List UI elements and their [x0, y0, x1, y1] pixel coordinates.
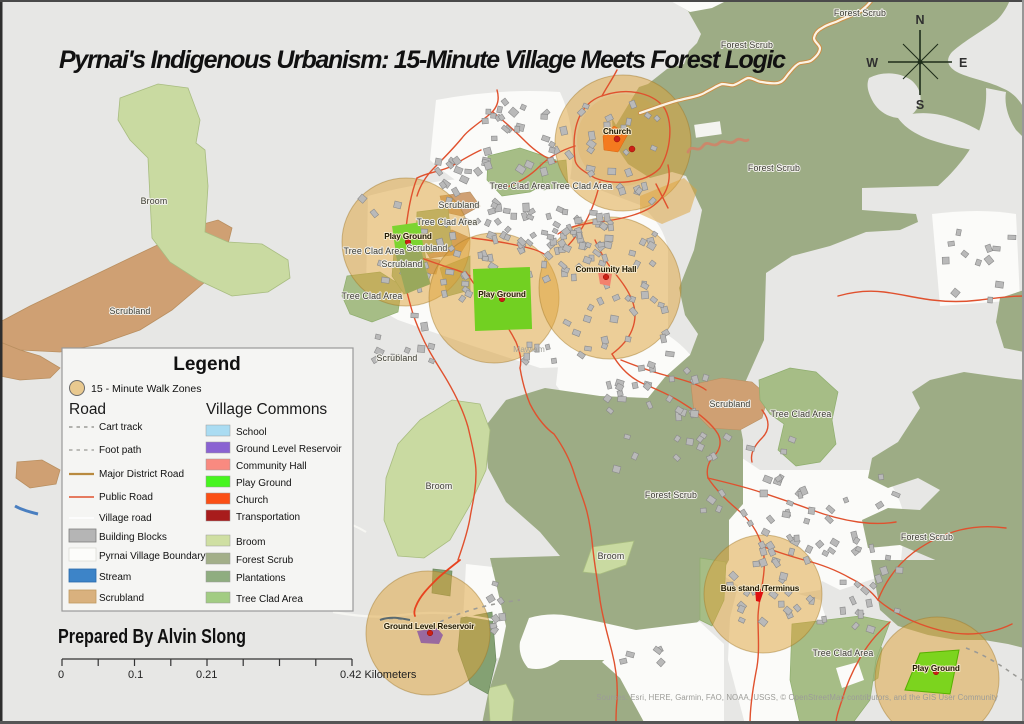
svg-text:Scrubland: Scrubland: [407, 243, 448, 253]
svg-text:Broom: Broom: [141, 196, 168, 206]
svg-text:0.21: 0.21: [196, 669, 217, 681]
svg-text:Ground Level Reservoir: Ground Level Reservoir: [236, 444, 342, 455]
svg-text:0.42 Kilometers: 0.42 Kilometers: [340, 669, 417, 681]
svg-text:Public Road: Public Road: [99, 492, 153, 503]
svg-text:Play Ground: Play Ground: [912, 664, 960, 673]
svg-text:Tree Clad Area: Tree Clad Area: [813, 648, 874, 658]
svg-text:Scrubland: Scrubland: [377, 353, 418, 363]
svg-text:E: E: [959, 56, 967, 70]
svg-text:Tree Clad Area: Tree Clad Area: [771, 409, 832, 419]
svg-text:Tree Clad Area: Tree Clad Area: [344, 246, 405, 256]
svg-text:N: N: [915, 13, 924, 27]
svg-text:Building Blocks: Building Blocks: [99, 532, 167, 543]
svg-text:Village Commons: Village Commons: [206, 401, 327, 418]
svg-text:Church: Church: [236, 495, 268, 506]
svg-text:Scrubland: Scrubland: [99, 593, 144, 604]
svg-text:Broom: Broom: [426, 481, 453, 491]
svg-text:Scrubland: Scrubland: [110, 306, 151, 316]
svg-text:Forest Scrub: Forest Scrub: [236, 555, 294, 566]
svg-text:Cart track: Cart track: [99, 422, 143, 433]
svg-text:Scrubland: Scrubland: [382, 259, 423, 269]
svg-text:Bus stand /Terminus: Bus stand /Terminus: [721, 584, 800, 593]
svg-text:Community Hall: Community Hall: [576, 265, 637, 274]
svg-text:Road: Road: [69, 401, 106, 418]
svg-text:Tree Clad Area: Tree Clad Area: [552, 181, 613, 191]
svg-text:W: W: [866, 56, 878, 70]
svg-text:Mawlam: Mawlam: [513, 344, 545, 354]
svg-text:0.1: 0.1: [128, 669, 143, 681]
svg-text:Tree Clad Area: Tree Clad Area: [490, 181, 551, 191]
svg-text:Major District Road: Major District Road: [99, 469, 184, 480]
svg-text:Ground Level Reservoir: Ground Level Reservoir: [384, 622, 476, 631]
svg-text:Prepared By Alvin Slong: Prepared By Alvin Slong: [58, 626, 246, 648]
svg-text:Forest Scrub: Forest Scrub: [748, 163, 800, 173]
svg-text:Pyrnai Village Boundary: Pyrnai Village Boundary: [99, 551, 206, 562]
svg-text:School: School: [236, 427, 267, 438]
svg-text:0: 0: [58, 669, 64, 681]
svg-text:Foot path: Foot path: [99, 445, 141, 456]
svg-text:Legend: Legend: [173, 354, 241, 375]
svg-text:Plantations: Plantations: [236, 573, 285, 584]
svg-text:Broom: Broom: [598, 551, 625, 561]
svg-text:Tree Clad Area: Tree Clad Area: [417, 217, 478, 227]
svg-text:Forest Scrub: Forest Scrub: [645, 490, 697, 500]
svg-text:Church: Church: [603, 127, 631, 136]
svg-text:Forest Scrub: Forest Scrub: [834, 8, 886, 18]
svg-text:Tree Clad Area: Tree Clad Area: [342, 291, 403, 301]
svg-text:Stream: Stream: [99, 572, 131, 583]
svg-text:15 - Minute Walk Zones: 15 - Minute Walk Zones: [91, 383, 202, 395]
svg-text:S: S: [916, 98, 924, 112]
svg-text:Play Ground: Play Ground: [236, 478, 292, 489]
svg-text:Community Hall: Community Hall: [236, 461, 307, 472]
svg-text:Sources: Esri, HERE, Garmin, F: Sources: Esri, HERE, Garmin, FAO, NOAA, …: [596, 693, 998, 702]
svg-text:Scrubland: Scrubland: [710, 399, 751, 409]
svg-text:Broom: Broom: [236, 537, 265, 548]
svg-text:Forest Scrub: Forest Scrub: [901, 532, 953, 542]
svg-text:Transportation: Transportation: [236, 512, 300, 523]
svg-text:Pyrnai's Indigenous Urbanism:: Pyrnai's Indigenous Urbanism: 15-Minute …: [59, 46, 786, 74]
svg-text:Play Ground: Play Ground: [384, 232, 432, 241]
svg-text:Village road: Village road: [99, 513, 152, 524]
svg-text:Tree Clad Area: Tree Clad Area: [236, 594, 303, 605]
svg-text:Play Ground: Play Ground: [478, 290, 526, 299]
svg-text:Scrubland: Scrubland: [439, 200, 480, 210]
